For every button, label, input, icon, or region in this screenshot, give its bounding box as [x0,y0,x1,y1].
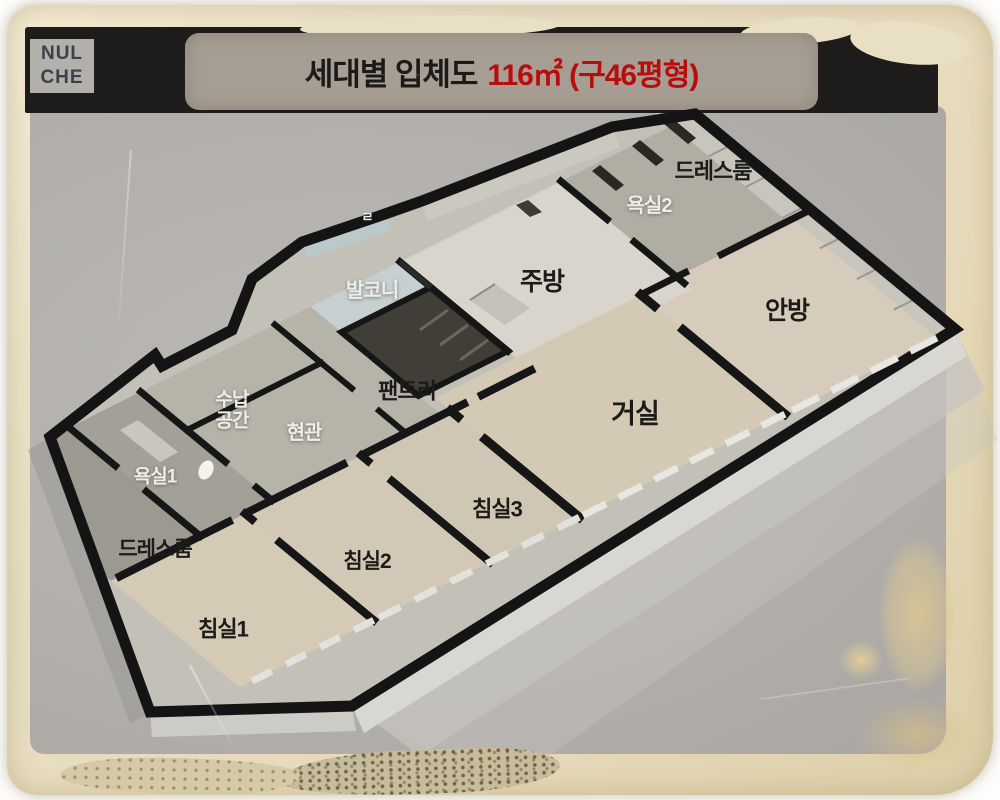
label-dressroom-left: 드레스룸 [118,538,191,562]
paper-stain [858,700,978,770]
label-bed3: 침실3 [472,498,522,523]
paper-stain [880,540,955,690]
label-kitchen: 주방 [520,268,564,296]
label-bed1: 침실1 [198,618,248,643]
label-dressroom-top: 드레스룸 [675,160,752,185]
label-living: 거실 [611,399,659,429]
label-balcony: 발코니 [346,280,398,302]
label-storage: 수납 공간 [216,390,249,433]
label-pantry: 팬트리 [378,380,436,405]
label-partial: ㄹ [362,211,373,226]
floorplan-3d: 드레스룸 욕실2 주방 안방 발코니 팬트리 수납 공간 현관 거실 욕실1 드… [0,0,1000,800]
slide-page: 세대별 입체도 116㎡ (구46평형) NUL CHE [0,0,1000,800]
label-master-bedroom: 안방 [765,297,809,325]
label-bath1: 욕실1 [134,466,177,487]
label-bed2: 침실2 [343,550,390,574]
floorplan-svg [0,0,1000,800]
label-entrance: 현관 [287,422,322,444]
paper-stain [838,640,884,680]
label-bath2: 욕실2 [627,195,672,217]
